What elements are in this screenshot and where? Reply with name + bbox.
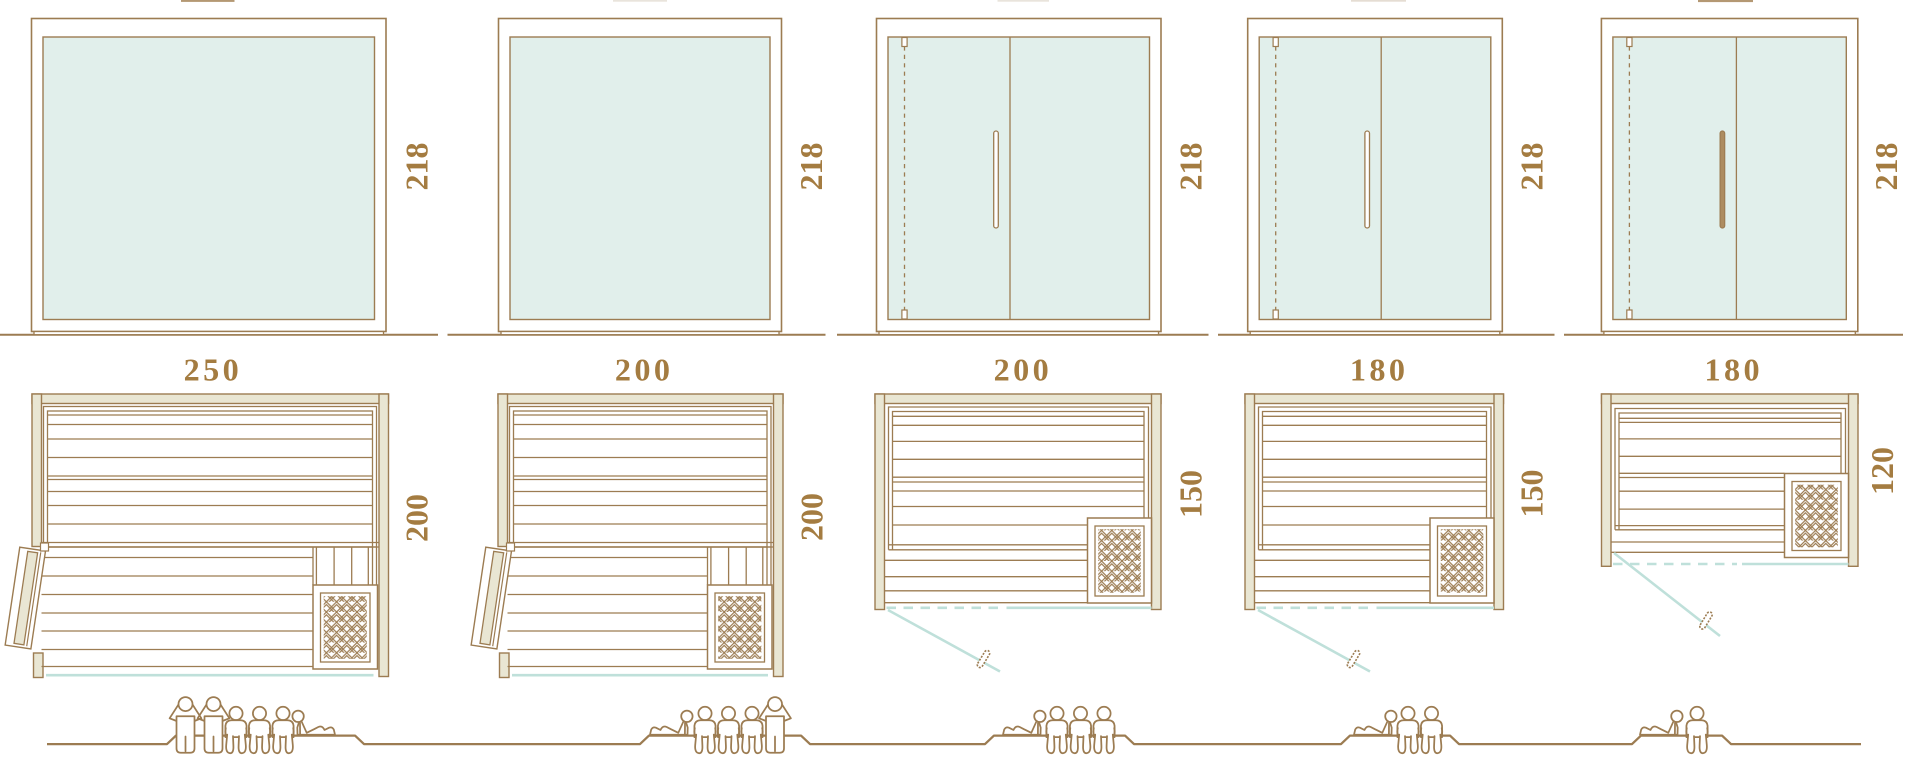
svg-text:180: 180 [1350,352,1408,388]
svg-text:180: 180 [1704,352,1762,388]
svg-text:120: 120 [1864,447,1900,495]
svg-text:218: 218 [1513,143,1549,191]
svg-text:200: 200 [398,494,434,542]
svg-text:200: 200 [615,352,673,388]
svg-text:218: 218 [793,143,829,191]
svg-text:218: 218 [398,143,434,191]
svg-text:200: 200 [994,352,1052,388]
svg-text:250: 250 [184,352,242,388]
svg-text:150: 150 [1172,470,1208,518]
svg-text:200: 200 [793,493,829,541]
svg-text:218: 218 [1868,143,1904,191]
svg-text:218: 218 [1172,143,1208,191]
svg-text:150: 150 [1513,470,1549,518]
